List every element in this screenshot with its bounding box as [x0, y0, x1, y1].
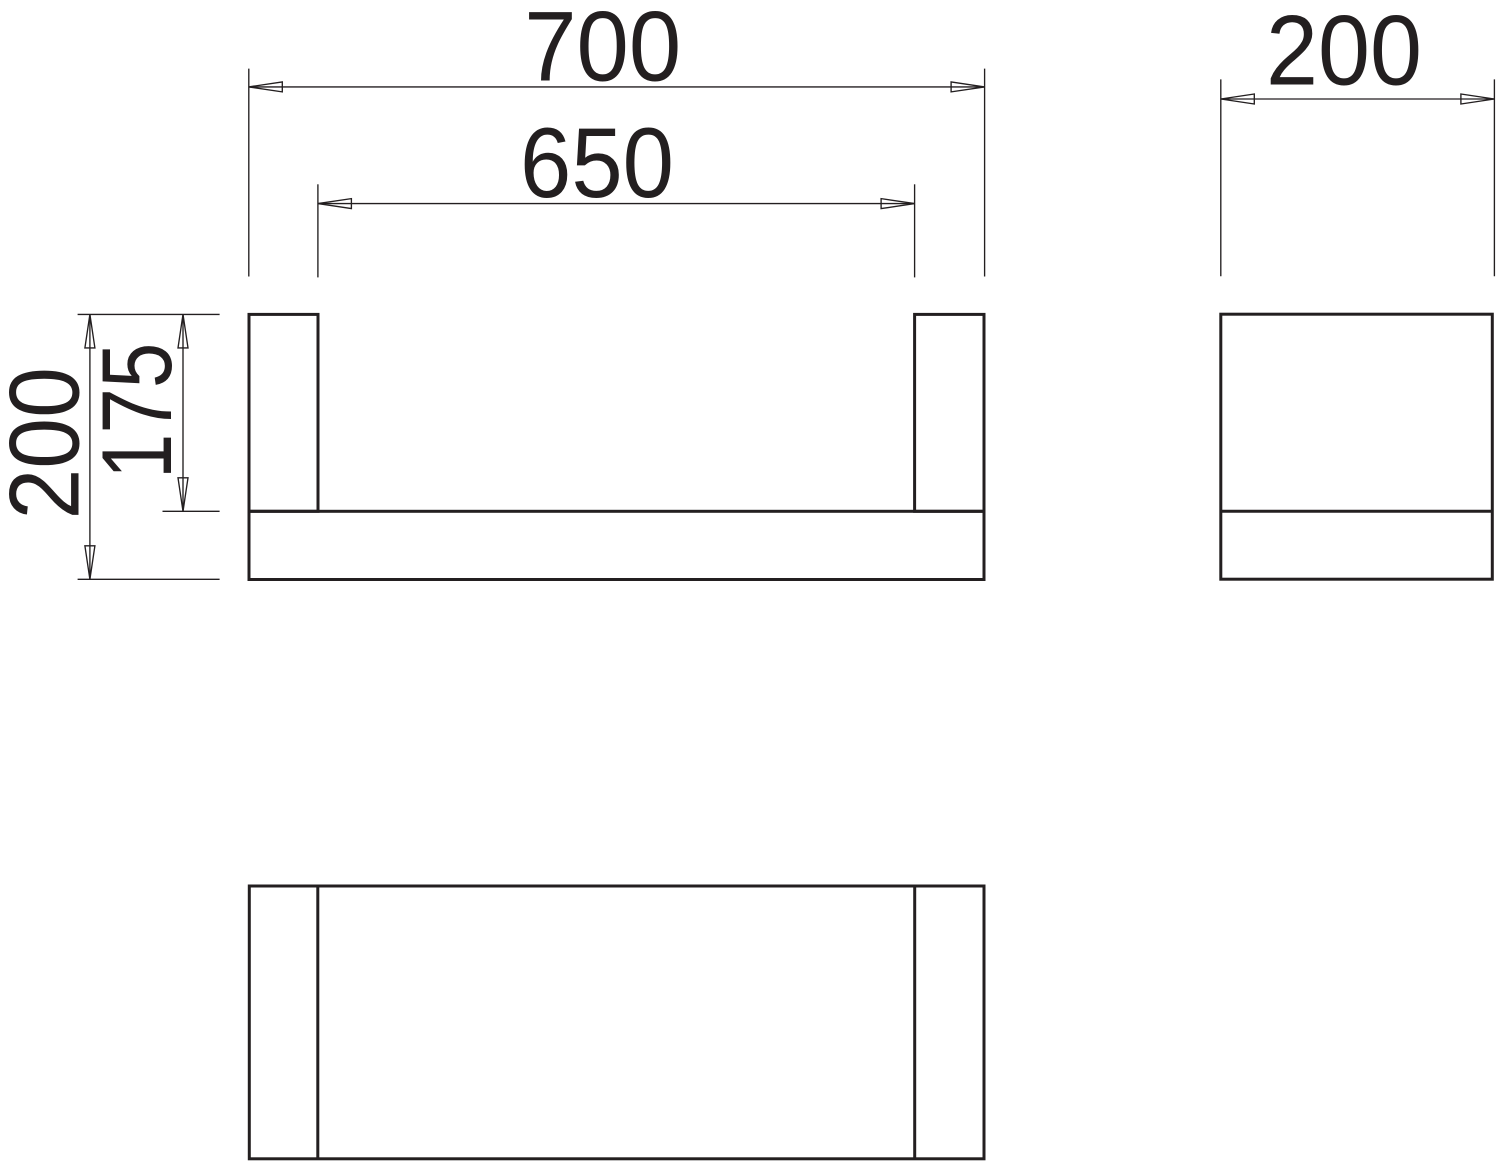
svg-text:650: 650 — [520, 107, 674, 218]
svg-text:175: 175 — [81, 343, 192, 480]
svg-text:700: 700 — [524, 0, 681, 102]
svg-text:200: 200 — [1266, 0, 1422, 106]
